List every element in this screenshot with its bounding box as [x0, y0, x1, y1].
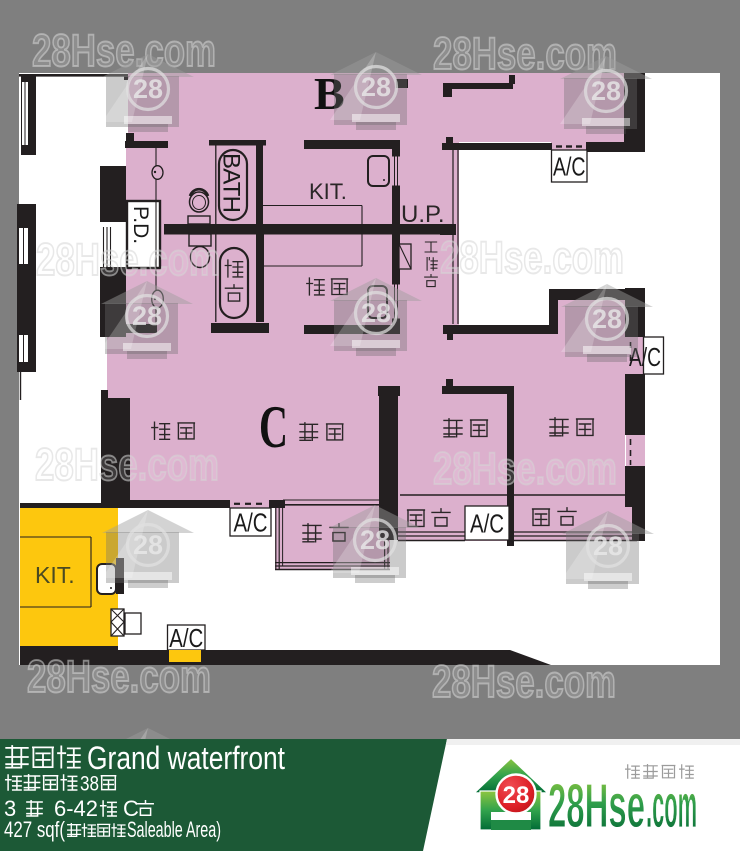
svg-text:28: 28 [591, 76, 621, 106]
svg-text:28: 28 [361, 298, 391, 328]
svg-text:Saleable Area): Saleable Area) [127, 817, 221, 842]
svg-text:A/C: A/C [169, 623, 203, 653]
svg-text:KIT.: KIT. [309, 179, 347, 204]
svg-text:28: 28 [133, 530, 163, 560]
svg-text:28: 28 [360, 525, 390, 555]
svg-text:Grand waterfront: Grand waterfront [87, 740, 285, 776]
svg-text:C: C [259, 394, 288, 460]
svg-text:BATH: BATH [218, 153, 245, 213]
svg-text:28: 28 [361, 72, 391, 102]
svg-text:28Hse.com: 28Hse.com [433, 443, 617, 494]
svg-text:KIT.: KIT. [35, 562, 75, 588]
svg-text:28Hse.com: 28Hse.com [432, 656, 616, 707]
svg-text:28: 28 [132, 301, 162, 331]
svg-text:38: 38 [80, 773, 99, 796]
svg-text:28: 28 [503, 782, 530, 809]
svg-text:U.P.: U.P. [401, 201, 445, 228]
svg-text:28: 28 [593, 531, 623, 561]
svg-text:28Hse.com: 28Hse.com [35, 439, 219, 490]
svg-text:28Hse.com: 28Hse.com [440, 232, 624, 283]
svg-text:A/C: A/C [553, 152, 586, 182]
svg-text:28Hse: 28Hse [548, 772, 645, 841]
svg-text:28: 28 [133, 74, 163, 104]
svg-text:28: 28 [592, 304, 622, 334]
svg-text:427 sqf(: 427 sqf( [4, 817, 66, 842]
svg-text:28Hse.com: 28Hse.com [36, 234, 220, 285]
svg-text:A/C: A/C [234, 508, 268, 538]
svg-text:.com: .com [646, 772, 697, 841]
svg-text:28Hse.com: 28Hse.com [27, 651, 211, 702]
svg-text:A/C: A/C [470, 509, 504, 539]
